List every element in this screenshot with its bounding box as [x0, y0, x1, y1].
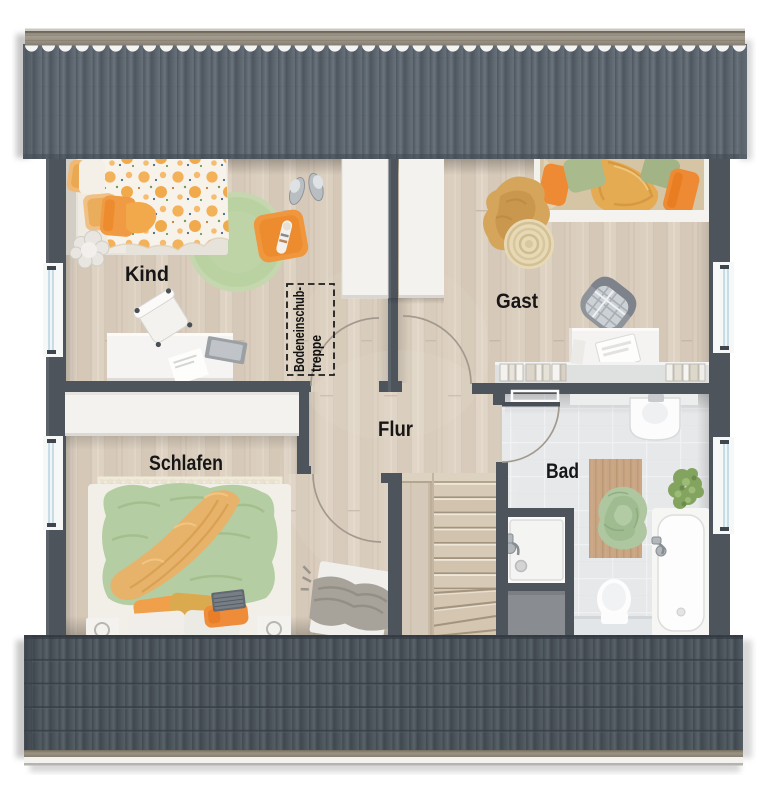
svg-text:Bad: Bad [546, 460, 579, 483]
svg-text:Kind: Kind [125, 263, 169, 286]
svg-text:Bodeneinschub-: Bodeneinschub- [291, 287, 308, 372]
svg-text:Schlafen: Schlafen [149, 452, 223, 475]
svg-text:Flur: Flur [378, 418, 413, 441]
svg-text:treppe: treppe [308, 335, 325, 372]
svg-text:Gast: Gast [496, 290, 538, 313]
